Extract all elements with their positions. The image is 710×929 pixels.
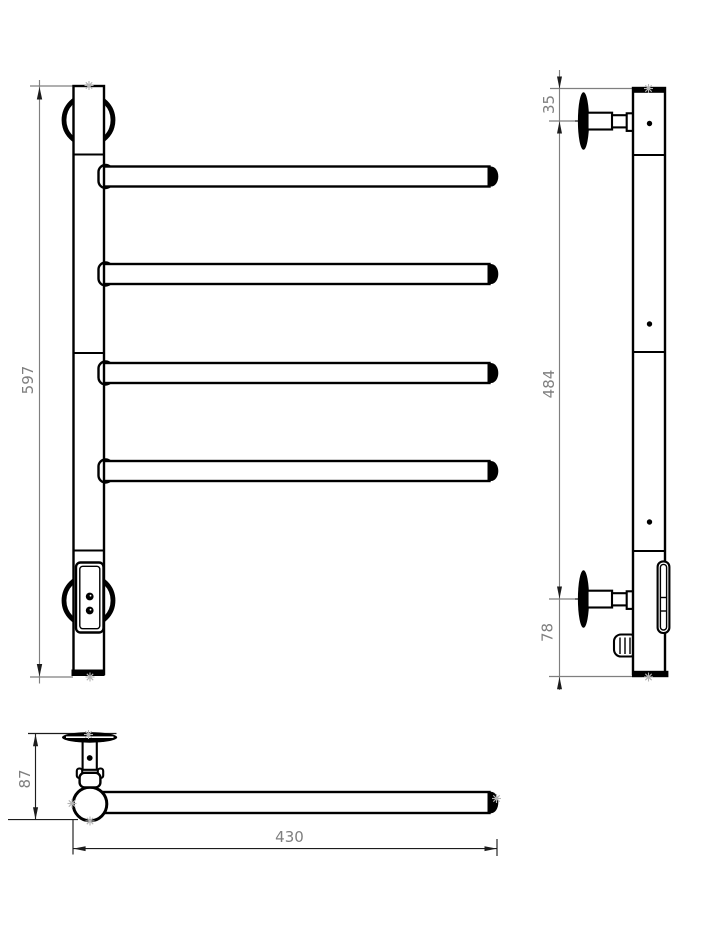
dim-label-597: 597 [19,366,37,395]
dim-arrow-down [557,587,562,599]
anchor-marker [492,794,501,803]
dim-arrow-right [485,846,497,851]
towel-bar [104,363,490,383]
bracket-stem [588,591,613,608]
anchor-marker [85,81,94,90]
towel-bar [104,167,490,187]
bracket-stem-narrow [612,115,627,127]
front-view: 597 [19,80,499,684]
dim-arrow-down [37,664,42,677]
anchor-marker [68,799,77,808]
post-bottom-cap [632,671,668,677]
bar-end-cap [488,461,499,481]
anchor-marker [644,673,653,682]
anchor-marker [644,84,653,93]
swivel-shoulder [80,773,101,788]
control-button [86,607,94,615]
technical-drawing-canvas: 597 [0,0,710,929]
dim-label-78: 78 [538,623,556,642]
dim-label-87: 87 [16,769,34,788]
dim-arrow-down [33,807,38,819]
post-cross-section [73,787,107,821]
dim-arrow-up [37,87,42,100]
bottom-view: 87 430 [8,730,501,856]
bracket-stem-narrow [612,593,627,605]
control-button [86,593,94,601]
dim-arrow-up [557,677,562,689]
towel-bar [104,264,490,284]
dim-arrow-left [73,846,85,851]
bar-end-cap [488,264,499,284]
control-button-highlight [90,595,92,597]
towel-bar [104,461,490,481]
screw-hole-dot [87,755,93,761]
dim-label-484: 484 [540,370,558,399]
dim-arrow-down [557,77,562,89]
bar-end-cap [488,167,499,187]
dim-arrow-up [557,121,562,133]
towel-rail-drawing: 597 [0,0,710,929]
screw-hole-dot [647,519,652,524]
anchor-marker [84,730,93,739]
control-button-highlight [90,609,92,611]
dim-label-35: 35 [540,95,558,114]
screw-hole-dot [647,121,652,126]
anchor-marker [86,817,95,826]
side-view: 35 484 78 [538,70,669,690]
screw-hole-dot [647,321,652,326]
bracket-stem [588,113,613,130]
anchor-marker [86,673,95,682]
dim-label-430: 430 [275,828,304,846]
dim-arrow-up [33,734,38,746]
bar-end-cap [488,363,499,383]
arm-top-view [95,792,490,813]
